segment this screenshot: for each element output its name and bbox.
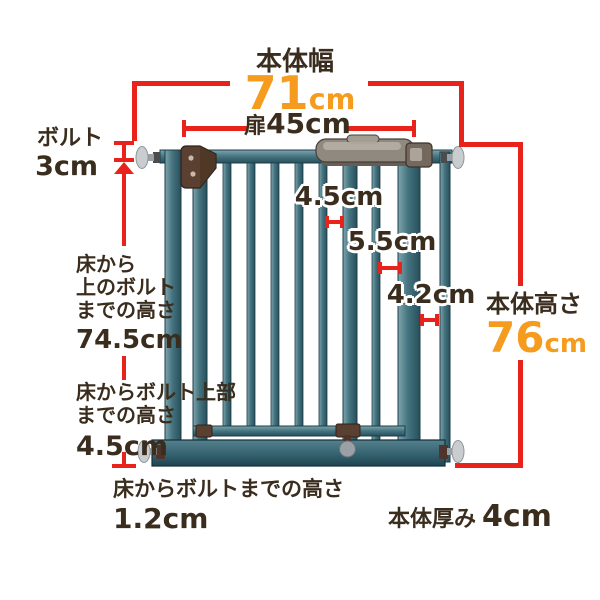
dim-door-width-line-left <box>184 126 248 131</box>
floor-to-bolt-value: 1.2cm <box>113 503 208 535</box>
door-width-value: 45cm <box>266 107 351 140</box>
dim-gap3-tick-right <box>435 314 439 326</box>
body-height-unit: cm <box>544 329 587 359</box>
body-thickness: 本体厚み 4cm <box>388 502 552 532</box>
body-height-number: 76 <box>486 313 544 362</box>
dim-body-width-line-right <box>368 81 464 86</box>
floor-to-bolt-top-line1: 床からボルト上部 <box>76 381 236 404</box>
body-height-value: 76cm <box>486 317 587 359</box>
dim-door-width-line-right <box>348 126 414 131</box>
dim-floor-upper-bolt-line-1 <box>122 174 126 246</box>
dim-body-height-line-1 <box>518 142 523 286</box>
bar-gap-3-label: 4.2cm <box>386 281 476 311</box>
dim-up-arrow <box>114 162 134 174</box>
dim-body-height-foot <box>455 463 523 468</box>
floor-to-upper-bolt-line1: 床から <box>76 253 183 276</box>
bolt-label: ボルト <box>18 126 103 151</box>
floor-to-upper-bolt-line3: までの高さ <box>76 299 183 322</box>
dim-floor-tick <box>112 464 136 468</box>
hinge-screw <box>188 155 193 160</box>
floor-to-bolt-top-value: 4.5cm <box>76 431 236 462</box>
door-width-label: 扉 <box>244 114 266 139</box>
product-dimension-diagram: 本体幅 71cm 扉45cm ボルト 3cm 床から 上のボルト までの高さ 7… <box>0 0 600 600</box>
gate-bar <box>247 163 255 431</box>
pressure-bolt-top-left <box>136 147 160 169</box>
dim-door-width-tick-right <box>412 120 416 137</box>
bolt-value: 3cm <box>18 151 98 182</box>
gate-bar <box>271 163 279 431</box>
bar-gap-1-label: 4.5cm <box>294 183 384 213</box>
dim-gap2-tick-right <box>398 262 402 274</box>
bar-gap-2-label: 5.5cm <box>347 228 437 258</box>
floor-to-upper-bolt-value: 74.5cm <box>76 326 183 356</box>
floor-to-upper-bolt-label: 床から 上のボルト までの高さ 74.5cm <box>76 253 183 356</box>
floor-to-upper-bolt-line2: 上のボルト <box>76 276 183 299</box>
door-width-dimension: 扉45cm <box>240 110 355 138</box>
dim-body-height-line-2 <box>518 360 523 463</box>
gate-hinge <box>181 146 216 188</box>
floor-to-bolt-top-label: 床からボルト上部 までの高さ 4.5cm <box>76 381 236 462</box>
body-thickness-value: 4cm <box>482 502 552 532</box>
handle-lock-button <box>410 148 422 161</box>
floor-to-bolt-label: 床からボルトまでの高さ <box>113 477 344 501</box>
floor-to-bolt-top-line2: までの高さ <box>76 404 236 427</box>
dim-body-height-top <box>461 142 523 147</box>
body-thickness-label: 本体厚み <box>388 507 476 532</box>
dim-body-width-line-left <box>132 81 230 86</box>
dim-body-width-drop-right <box>459 81 464 147</box>
hinge-screw <box>190 171 195 176</box>
dim-body-width-drop-left <box>132 81 137 141</box>
dim-floor-upper-bolt-line-2 <box>122 356 126 380</box>
dim-gap1-tick-right <box>340 216 344 228</box>
